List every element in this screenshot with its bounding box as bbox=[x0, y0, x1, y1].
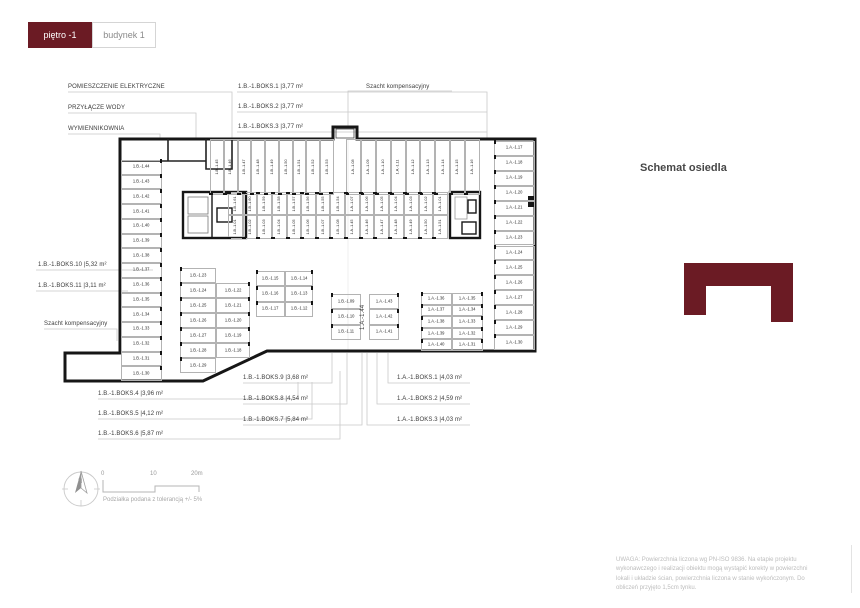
parking-stall-label: 1.B.-1.09 bbox=[338, 300, 355, 304]
parking-stall-label: 1.B.-1.24 bbox=[190, 288, 207, 292]
parking-stall-label: 1.A.-1.19 bbox=[506, 176, 523, 180]
shaft-label-top: Szacht kompensacyjny bbox=[366, 84, 429, 90]
parking-stall[interactable]: 1.A.-1.36 bbox=[421, 293, 452, 305]
parking-stall-label: 1.A.-1.50 bbox=[424, 219, 428, 234]
scale-tick-20m: 20m bbox=[191, 471, 203, 477]
parking-stall[interactable]: 1.A.-1.02 bbox=[419, 192, 434, 215]
parking-stall[interactable]: 1.A.-1.40 bbox=[421, 339, 452, 351]
parking-stall[interactable]: 1.A.-1.27 bbox=[494, 290, 535, 305]
parking-stall[interactable]: 1.B.-1.53 bbox=[320, 139, 334, 195]
parking-stall[interactable]: 1.B.-1.44 bbox=[121, 160, 162, 175]
parking-stall-label: 1.A.-1.47 bbox=[380, 219, 384, 234]
room-label-exchanger: WYMIENNIKOWNIA bbox=[68, 126, 124, 132]
parking-stall[interactable]: 1.B.-1.16 bbox=[256, 286, 285, 301]
parking-stall[interactable]: 1.A.-1.49 bbox=[404, 215, 419, 239]
stall-label-rotated: 1.A.-1.44 bbox=[360, 305, 366, 330]
parking-stall-label: 1.B.-1.08 bbox=[336, 219, 340, 234]
parking-stall[interactable]: 1.B.-1.32 bbox=[121, 337, 162, 352]
scale-tick-0: 0 bbox=[101, 471, 104, 477]
parking-stall[interactable]: 1.B.-1.08 bbox=[330, 215, 345, 239]
parking-stall[interactable]: 1.A.-1.39 bbox=[421, 328, 452, 340]
parking-stall-label: 1.A.-1.37 bbox=[428, 308, 445, 312]
uwaga-footnote: UWAGA: Powierzchnia liczona wg PN-ISO 98… bbox=[616, 556, 822, 593]
parking-stall-label: 1.B.-1.31 bbox=[133, 357, 150, 361]
parking-stall-label: 1.B.-1.49 bbox=[270, 159, 274, 174]
parking-stall[interactable]: 1.B.-1.50 bbox=[279, 139, 293, 195]
parking-stall[interactable]: 1.B.-1.18 bbox=[216, 343, 250, 358]
parking-stall[interactable]: 1.A.-1.26 bbox=[494, 275, 535, 290]
parking-stall-label: 1.B.-1.13 bbox=[291, 292, 308, 296]
parking-stall[interactable]: 1.B.-1.27 bbox=[180, 328, 216, 343]
parking-stall-label: 1.A.-1.33 bbox=[459, 320, 476, 324]
parking-stall-label: 1.A.-1.51 bbox=[439, 219, 443, 234]
parking-stall-label: 1.A.-1.38 bbox=[428, 320, 445, 324]
room-label-water: PRZYŁĄCZE WODY bbox=[68, 105, 125, 111]
parking-stall[interactable]: 1.A.-1.37 bbox=[421, 305, 452, 317]
parking-stall-label: 1.B.-1.19 bbox=[225, 333, 242, 337]
parking-stall-label: 1.B.-1.35 bbox=[133, 298, 150, 302]
parking-stall-label: 1.A.-1.10 bbox=[381, 159, 385, 174]
parking-stall-label: 1.B.-1.26 bbox=[190, 318, 207, 322]
parking-stall-label: 1.B.-1.61 bbox=[233, 196, 237, 211]
divider-line bbox=[851, 545, 852, 593]
parking-stall-label: 1.B.-1.12 bbox=[291, 307, 308, 311]
parking-stall[interactable]: 1.A.-1.29 bbox=[494, 320, 535, 335]
parking-stall[interactable]: 1.A.-1.35 bbox=[452, 293, 483, 305]
parking-stall-label: 1.B.-1.07 bbox=[321, 219, 325, 234]
parking-stall[interactable]: 1.A.-1.03 bbox=[404, 192, 419, 215]
parking-stall[interactable]: 1.B.-1.25 bbox=[180, 298, 216, 313]
parking-stall-label: 1.A.-1.41 bbox=[376, 330, 393, 334]
parking-stall[interactable]: 1.A.-1.17 bbox=[494, 141, 535, 156]
parking-stall-label: 1.B.-1.15 bbox=[262, 277, 279, 281]
parking-stall[interactable]: 1.A.-1.42 bbox=[369, 309, 399, 324]
parking-stall-label: 1.A.-1.23 bbox=[506, 236, 523, 240]
parking-stall[interactable]: 1.B.-1.19 bbox=[216, 328, 250, 343]
parking-stall-label: 1.B.-1.06 bbox=[307, 219, 311, 234]
parking-stall-label: 1.B.-1.27 bbox=[190, 333, 207, 337]
parking-stall-label: 1.A.-1.02 bbox=[424, 196, 428, 211]
scale-tick-10: 10 bbox=[150, 471, 157, 477]
parking-stall-label: 1.B.-1.40 bbox=[133, 224, 150, 228]
parking-stall-label: 1.A.-1.34 bbox=[459, 308, 476, 312]
parking-stall-label: 1.B.-1.02 bbox=[248, 219, 252, 234]
parking-stall-label: 1.B.-1.59 bbox=[263, 196, 267, 211]
parking-stall[interactable]: 1.B.-1.24 bbox=[180, 283, 216, 298]
boks-label: 1.B.-1.BOKS.6 |5,87 m² bbox=[98, 431, 163, 437]
parking-stall[interactable]: 1.B.-1.15 bbox=[256, 271, 285, 286]
parking-stall[interactable]: 1.B.-1.06 bbox=[301, 215, 316, 239]
parking-stall-label: 1.A.-1.40 bbox=[428, 343, 445, 347]
parking-stall-label: 1.A.-1.08 bbox=[352, 159, 356, 174]
parking-stall[interactable]: 1.A.-1.38 bbox=[421, 316, 452, 328]
parking-stall[interactable]: 1.B.-1.52 bbox=[306, 139, 320, 195]
parking-stall[interactable]: 1.B.-1.39 bbox=[121, 234, 162, 249]
parking-stall[interactable]: 1.B.-1.13 bbox=[285, 286, 313, 301]
parking-stall-label: 1.A.-1.01 bbox=[439, 196, 443, 211]
parking-stall-label: 1.A.-1.48 bbox=[395, 219, 399, 234]
parking-stall[interactable]: 1.B.-1.49 bbox=[265, 139, 279, 195]
boks-label: 1.A.-1.BOKS.3 |4,03 m² bbox=[397, 417, 462, 423]
parking-stall[interactable]: 1.B.-1.09 bbox=[331, 294, 361, 309]
parking-stall-label: 1.B.-1.39 bbox=[133, 239, 150, 243]
parking-stall[interactable]: 1.B.-1.46 bbox=[224, 139, 238, 195]
parking-stall[interactable]: 1.A.-1.43 bbox=[369, 294, 399, 309]
boks-label: 1.A.-1.BOKS.1 |4,03 m² bbox=[397, 375, 462, 381]
boks-label: 1.B.-1.BOKS.10 |5,32 m² bbox=[38, 262, 107, 268]
parking-stall-label: 1.A.-1.03 bbox=[409, 196, 413, 211]
parking-stall[interactable]: 1.A.-1.04 bbox=[389, 192, 404, 215]
parking-stall-label: 1.B.-1.38 bbox=[133, 254, 150, 258]
parking-stall-label: 1.A.-1.31 bbox=[459, 343, 476, 347]
parking-stall-label: 1.B.-1.42 bbox=[133, 195, 150, 199]
parking-stall[interactable]: 1.B.-1.07 bbox=[316, 215, 331, 239]
parking-stall[interactable]: 1.B.-1.36 bbox=[121, 278, 162, 293]
parking-stall[interactable]: 1.A.-1.30 bbox=[494, 335, 535, 350]
parking-stall-label: 1.A.-1.39 bbox=[428, 332, 445, 336]
parking-stall-label: 1.A.-1.06 bbox=[365, 196, 369, 211]
parking-stall[interactable]: 1.B.-1.43 bbox=[121, 175, 162, 190]
stalls-layer: 1.B.-1.441.B.-1.431.B.-1.421.B.-1.411.B.… bbox=[0, 0, 860, 608]
parking-stall[interactable]: 1.B.-1.56 bbox=[301, 192, 316, 215]
parking-stall-label: 1.A.-1.16 bbox=[471, 159, 475, 174]
parking-stall[interactable]: 1.A.-1.08 bbox=[346, 139, 361, 195]
parking-stall-label: 1.B.-1.53 bbox=[325, 159, 329, 174]
parking-stall-label: 1.B.-1.25 bbox=[190, 303, 207, 307]
boks-label: 1.B.-1.BOKS.5 |4,12 m² bbox=[98, 411, 163, 417]
parking-stall[interactable]: 1.A.-1.46 bbox=[360, 215, 375, 239]
parking-stall-label: 1.A.-1.25 bbox=[506, 266, 523, 270]
parking-stall[interactable]: 1.B.-1.55 bbox=[316, 192, 331, 215]
parking-stall-label: 1.B.-1.34 bbox=[133, 313, 150, 317]
parking-stall-label: 1.A.-1.49 bbox=[409, 219, 413, 234]
parking-stall-label: 1.B.-1.46 bbox=[229, 159, 233, 174]
parking-stall-label: 1.B.-1.54 bbox=[336, 196, 340, 211]
parking-stall[interactable]: 1.A.-1.11 bbox=[391, 139, 406, 195]
parking-stall-label: 1.A.-1.35 bbox=[459, 297, 476, 301]
parking-stall[interactable]: 1.A.-1.31 bbox=[452, 339, 483, 351]
parking-stall[interactable]: 1.B.-1.10 bbox=[331, 309, 361, 324]
parking-stall-label: 1.B.-1.36 bbox=[133, 283, 150, 287]
parking-stall-label: 1.A.-1.27 bbox=[506, 296, 523, 300]
scale-tolerance-note: Podziałka podana z tolerancją +/- 5% bbox=[103, 497, 202, 503]
boks-label: 1.B.-1.BOKS.9 |3,68 m² bbox=[243, 375, 308, 381]
estate-schematic-title: Schemat osiedla bbox=[640, 162, 727, 174]
parking-stall[interactable]: 1.A.-1.20 bbox=[494, 186, 535, 201]
parking-stall[interactable]: 1.B.-1.01 bbox=[228, 215, 243, 239]
parking-stall-label: 1.B.-1.17 bbox=[262, 307, 279, 311]
parking-stall[interactable]: 1.A.-1.45 bbox=[345, 215, 360, 239]
parking-stall-label: 1.B.-1.43 bbox=[133, 180, 150, 184]
parking-stall[interactable]: 1.B.-1.60 bbox=[243, 192, 258, 215]
parking-stall-label: 1.B.-1.41 bbox=[133, 210, 150, 214]
parking-stall-label: 1.A.-1.11 bbox=[396, 160, 400, 175]
parking-stall[interactable]: 1.A.-1.25 bbox=[494, 260, 535, 275]
parking-stall-label: 1.A.-1.43 bbox=[376, 300, 393, 304]
boks-label: 1.B.-1.BOKS.3 |3,77 m² bbox=[238, 124, 303, 130]
parking-stall-label: 1.A.-1.17 bbox=[506, 146, 523, 150]
floor-plan-page: piętro -1 budynek 1 bbox=[0, 0, 860, 608]
parking-stall-label: 1.B.-1.33 bbox=[133, 327, 150, 331]
parking-stall[interactable]: 1.B.-1.05 bbox=[287, 215, 302, 239]
parking-stall[interactable]: 1.A.-1.18 bbox=[494, 156, 535, 171]
parking-stall[interactable]: 1.A.-1.01 bbox=[433, 192, 448, 215]
parking-stall-label: 1.B.-1.58 bbox=[277, 196, 281, 211]
parking-stall[interactable]: 1.B.-1.22 bbox=[216, 283, 250, 298]
parking-stall-label: 1.A.-1.09 bbox=[366, 159, 370, 174]
parking-stall[interactable]: 1.B.-1.31 bbox=[121, 352, 162, 367]
boks-label: 1.B.-1.BOKS.7 |5,84 m² bbox=[243, 417, 308, 423]
parking-stall[interactable]: 1.B.-1.61 bbox=[228, 192, 243, 215]
parking-stall[interactable]: 1.B.-1.58 bbox=[272, 192, 287, 215]
boks-label: 1.B.-1.BOKS.2 |3,77 m² bbox=[238, 104, 303, 110]
parking-stall[interactable]: 1.B.-1.47 bbox=[238, 139, 252, 195]
parking-stall[interactable]: 1.B.-1.38 bbox=[121, 248, 162, 263]
boks-label: 1.B.-1.BOKS.11 |3,11 m² bbox=[38, 283, 106, 289]
parking-stall[interactable]: 1.A.-1.33 bbox=[452, 316, 483, 328]
parking-stall[interactable]: 1.B.-1.41 bbox=[121, 204, 162, 219]
boks-label: 1.B.-1.BOKS.1 |3,77 m² bbox=[238, 84, 303, 90]
parking-stall-label: 1.B.-1.47 bbox=[243, 159, 247, 174]
parking-stall[interactable]: 1.B.-1.40 bbox=[121, 219, 162, 234]
parking-stall[interactable]: 1.A.-1.21 bbox=[494, 201, 535, 216]
parking-stall-label: 1.B.-1.55 bbox=[321, 196, 325, 211]
parking-stall[interactable]: 1.B.-1.12 bbox=[285, 302, 313, 317]
parking-stall-label: 1.B.-1.04 bbox=[277, 219, 281, 234]
parking-stall[interactable]: 1.B.-1.35 bbox=[121, 293, 162, 308]
parking-stall[interactable]: 1.B.-1.37 bbox=[121, 263, 162, 278]
parking-stall-label: 1.A.-1.46 bbox=[365, 219, 369, 234]
parking-stall[interactable]: 1.B.-1.51 bbox=[293, 139, 307, 195]
parking-stall-label: 1.A.-1.29 bbox=[506, 326, 523, 330]
parking-stall-label: 1.A.-1.12 bbox=[411, 159, 415, 174]
parking-stall-label: 1.B.-1.22 bbox=[225, 288, 242, 292]
parking-stall-label: 1.B.-1.23 bbox=[190, 273, 207, 277]
parking-stall-label: 1.B.-1.50 bbox=[284, 159, 288, 174]
parking-stall[interactable]: 1.A.-1.09 bbox=[361, 139, 376, 195]
parking-stall[interactable]: 1.A.-1.51 bbox=[433, 215, 448, 239]
parking-stall-label: 1.B.-1.28 bbox=[190, 348, 207, 352]
parking-stall-label: 1.B.-1.57 bbox=[292, 196, 296, 211]
parking-stall[interactable]: 1.A.-1.14 bbox=[435, 139, 450, 195]
parking-stall-label: 1.A.-1.05 bbox=[380, 196, 384, 211]
parking-stall[interactable]: 1.A.-1.50 bbox=[419, 215, 434, 239]
parking-stall-label: 1.B.-1.37 bbox=[133, 268, 150, 272]
parking-stall-label: 1.B.-1.45 bbox=[215, 159, 219, 174]
parking-stall[interactable]: 1.A.-1.19 bbox=[494, 171, 535, 186]
parking-stall[interactable]: 1.A.-1.48 bbox=[389, 215, 404, 239]
parking-stall[interactable]: 1.A.-1.23 bbox=[494, 231, 535, 246]
parking-stall[interactable]: 1.B.-1.21 bbox=[216, 298, 250, 313]
parking-stall[interactable]: 1.B.-1.54 bbox=[330, 192, 345, 215]
parking-stall[interactable]: 1.A.-1.24 bbox=[494, 246, 535, 261]
parking-stall[interactable]: 1.B.-1.48 bbox=[251, 139, 265, 195]
parking-stall-label: 1.B.-1.52 bbox=[311, 159, 315, 174]
parking-stall[interactable]: 1.A.-1.41 bbox=[369, 325, 399, 340]
parking-stall[interactable]: 1.A.-1.13 bbox=[420, 139, 435, 195]
parking-stall[interactable]: 1.A.-1.06 bbox=[360, 192, 375, 215]
parking-stall-label: 1.B.-1.51 bbox=[298, 159, 302, 174]
parking-stall-label: 1.A.-1.22 bbox=[506, 221, 523, 225]
parking-stall-label: 1.A.-1.26 bbox=[506, 281, 523, 285]
parking-stall[interactable]: 1.B.-1.03 bbox=[257, 215, 272, 239]
parking-stall[interactable]: 1.A.-1.22 bbox=[494, 216, 535, 231]
parking-stall-label: 1.B.-1.48 bbox=[256, 159, 260, 174]
boks-label: 1.B.-1.BOKS.4 |3,96 m² bbox=[98, 391, 163, 397]
parking-stall[interactable]: 1.B.-1.59 bbox=[257, 192, 272, 215]
parking-stall[interactable]: 1.A.-1.07 bbox=[345, 192, 360, 215]
parking-stall[interactable]: 1.A.-1.12 bbox=[406, 139, 421, 195]
parking-stall-label: 1.A.-1.15 bbox=[456, 159, 460, 174]
compass-north-label: N bbox=[78, 479, 82, 485]
parking-stall-label: 1.B.-1.44 bbox=[133, 165, 150, 169]
parking-stall-label: 1.B.-1.18 bbox=[225, 348, 242, 352]
parking-stall-label: 1.B.-1.56 bbox=[307, 196, 311, 211]
parking-stall[interactable]: 1.B.-1.28 bbox=[180, 343, 216, 358]
boks-label: 1.B.-1.BOKS.8 |4,54 m² bbox=[243, 396, 308, 402]
parking-stall[interactable]: 1.B.-1.33 bbox=[121, 322, 162, 337]
parking-stall[interactable]: 1.A.-1.47 bbox=[374, 215, 389, 239]
parking-stall-label: 1.B.-1.29 bbox=[190, 363, 207, 367]
parking-stall[interactable]: 1.B.-1.20 bbox=[216, 313, 250, 328]
parking-stall-label: 1.B.-1.60 bbox=[248, 196, 252, 211]
parking-stall[interactable]: 1.A.-1.34 bbox=[452, 305, 483, 317]
parking-stall-label: 1.B.-1.32 bbox=[133, 342, 150, 346]
parking-stall[interactable]: 1.A.-1.05 bbox=[374, 192, 389, 215]
parking-stall-label: 1.A.-1.28 bbox=[506, 311, 523, 315]
parking-stall-label: 1.B.-1.30 bbox=[133, 372, 150, 376]
parking-stall-label: 1.A.-1.04 bbox=[395, 196, 399, 211]
parking-stall-label: 1.B.-1.14 bbox=[291, 277, 308, 281]
parking-stall[interactable]: 1.B.-1.04 bbox=[272, 215, 287, 239]
parking-stall-label: 1.B.-1.01 bbox=[233, 219, 237, 234]
parking-stall-label: 1.A.-1.14 bbox=[441, 159, 445, 174]
parking-stall-label: 1.A.-1.45 bbox=[350, 219, 354, 234]
parking-stall-label: 1.A.-1.21 bbox=[506, 206, 523, 210]
parking-stall[interactable]: 1.A.-1.15 bbox=[450, 139, 465, 195]
boks-label: 1.A.-1.BOKS.2 |4,59 m² bbox=[397, 396, 462, 402]
parking-stall-label: 1.B.-1.21 bbox=[225, 303, 242, 307]
parking-stall-label: 1.A.-1.30 bbox=[506, 340, 523, 344]
parking-stall[interactable]: 1.B.-1.11 bbox=[331, 325, 361, 340]
parking-stall[interactable]: 1.B.-1.14 bbox=[285, 271, 313, 286]
parking-stall-label: 1.B.-1.16 bbox=[262, 292, 279, 296]
parking-stall-label: 1.B.-1.03 bbox=[263, 219, 267, 234]
parking-stall-label: 1.B.-1.11 bbox=[338, 330, 354, 334]
parking-stall[interactable]: 1.B.-1.34 bbox=[121, 307, 162, 322]
shaft-label-left: Szacht kompensacyjny bbox=[44, 321, 107, 327]
parking-stall[interactable]: 1.B.-1.26 bbox=[180, 313, 216, 328]
parking-stall-label: 1.A.-1.36 bbox=[428, 297, 445, 301]
parking-stall-label: 1.A.-1.32 bbox=[459, 332, 476, 336]
parking-stall[interactable]: 1.B.-1.29 bbox=[180, 358, 216, 373]
parking-stall-label: 1.A.-1.24 bbox=[506, 251, 523, 255]
parking-stall[interactable]: 1.A.-1.28 bbox=[494, 305, 535, 320]
parking-stall-label: 1.B.-1.10 bbox=[338, 315, 355, 319]
parking-stall-label: 1.B.-1.05 bbox=[292, 219, 296, 234]
parking-stall-label: 1.A.-1.42 bbox=[376, 315, 393, 319]
parking-stall-label: 1.A.-1.07 bbox=[350, 196, 354, 211]
parking-stall[interactable]: 1.A.-1.10 bbox=[376, 139, 391, 195]
parking-stall-label: 1.A.-1.20 bbox=[506, 191, 523, 195]
parking-stall[interactable]: 1.B.-1.57 bbox=[287, 192, 302, 215]
parking-stall[interactable]: 1.A.-1.16 bbox=[465, 139, 480, 195]
parking-stall-label: 1.A.-1.18 bbox=[506, 161, 523, 165]
parking-stall[interactable]: 1.B.-1.17 bbox=[256, 302, 285, 317]
parking-stall[interactable]: 1.B.-1.45 bbox=[210, 139, 224, 195]
parking-stall-label: 1.A.-1.13 bbox=[426, 159, 430, 174]
parking-stall[interactable]: 1.A.-1.32 bbox=[452, 328, 483, 340]
parking-stall[interactable]: 1.B.-1.23 bbox=[180, 268, 216, 283]
parking-stall[interactable]: 1.B.-1.30 bbox=[121, 366, 162, 381]
parking-stall[interactable]: 1.B.-1.02 bbox=[243, 215, 258, 239]
parking-stall[interactable]: 1.B.-1.42 bbox=[121, 189, 162, 204]
room-label-electrical: POMIESZCZENIE ELEKTRYCZNE bbox=[68, 84, 165, 90]
parking-stall-label: 1.B.-1.20 bbox=[225, 318, 242, 322]
